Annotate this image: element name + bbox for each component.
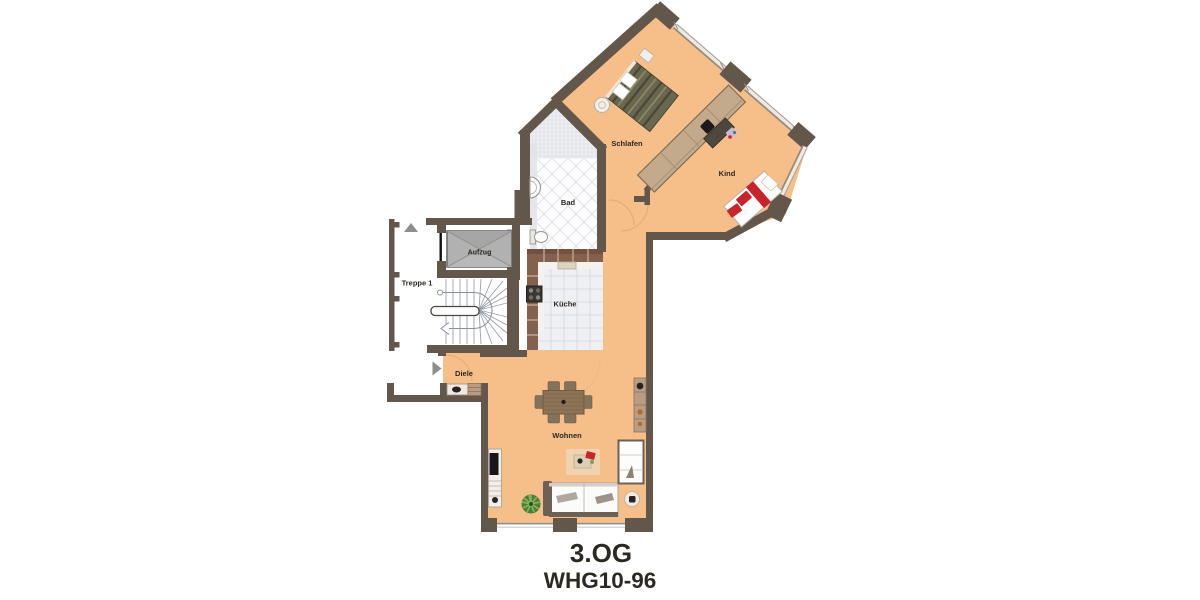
svg-text:3.OG: 3.OG: [570, 538, 632, 568]
svg-text:Aufzug: Aufzug: [468, 250, 492, 257]
svg-text:Wohnen: Wohnen: [552, 431, 582, 440]
svg-text:WHG10-96: WHG10-96: [544, 568, 657, 593]
svg-text:Küche: Küche: [554, 300, 577, 309]
svg-text:Kind: Kind: [719, 169, 736, 178]
svg-text:Diele: Diele: [455, 369, 473, 378]
svg-text:Schlafen: Schlafen: [611, 139, 643, 148]
svg-text:Treppe 1: Treppe 1: [402, 279, 433, 288]
svg-text:Bad: Bad: [561, 198, 576, 207]
